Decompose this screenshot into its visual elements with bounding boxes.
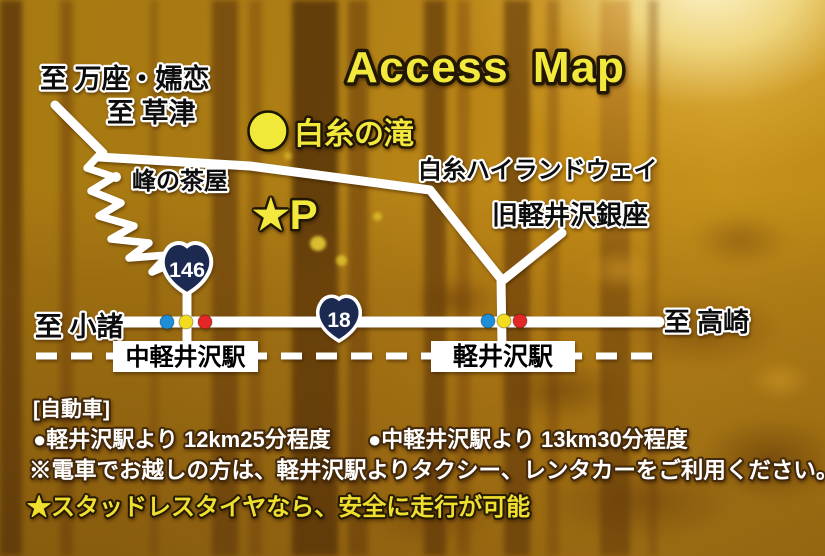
note-car-heading: [自動車] [33, 397, 110, 421]
signal-yellow-light [179, 315, 193, 329]
road-karuizawa-station-vertical [501, 278, 502, 347]
station-naka-karuizawa-label: 中軽井沢駅 [126, 344, 246, 371]
station-naka-karuizawa: 中軽井沢駅 [113, 341, 258, 372]
map-canvas: 中軽井沢駅 軽井沢駅 146 18 Access Map [0, 0, 825, 556]
road-kyu-karuizawa-ginza [502, 233, 562, 281]
note-studless-tire: ★スタッドレスタイヤなら、安全に走行が可能 [27, 492, 530, 521]
label-kyu-karuizawa-ginza: 旧軽井沢銀座 [492, 200, 648, 230]
signal-yellow-light [497, 314, 511, 328]
signal-red-light [513, 314, 527, 328]
signal-blue-light [160, 315, 174, 329]
signal-blue-light [481, 314, 495, 328]
route-18-number: 18 [327, 309, 351, 332]
access-map: 中軽井沢駅 軽井沢駅 146 18 Access Map [0, 0, 825, 556]
route-146-shield-icon: 146 [163, 243, 211, 294]
label-to-manza-tsumagoi: 至 万座・嬬恋 [40, 63, 210, 94]
note-from-naka-karuizawa: ●中軽井沢駅より 13km30分程度 [368, 427, 689, 452]
parking-star-icon: ★P [252, 191, 318, 238]
traffic-signal-naka-karuizawa [160, 315, 212, 329]
mine-no-chaya-dot-icon [111, 172, 121, 182]
label-shiraito-falls: 白糸の滝 [294, 118, 414, 151]
note-from-karuizawa: ●軽井沢駅より 12km25分程度 [33, 427, 332, 452]
label-to-takasaki: 至 高崎 [664, 307, 749, 337]
label-shiraito-highland-way: 白糸ハイランドウェイ [418, 156, 658, 184]
signal-red-light [198, 315, 212, 329]
route-146-number: 146 [169, 257, 205, 282]
label-to-kusatsu: 至 草津 [107, 98, 196, 128]
station-karuizawa: 軽井沢駅 [431, 341, 575, 372]
shiraito-falls-marker-icon [249, 112, 288, 151]
road-to-manza [55, 105, 103, 153]
page-title: Access Map [346, 43, 625, 92]
traffic-signal-karuizawa [481, 314, 527, 328]
label-to-komoro: 至 小諸 [35, 311, 124, 342]
route-18-shield-icon: 18 [318, 296, 360, 341]
label-mine-no-chaya: 峰の茶屋 [132, 167, 228, 195]
note-train: ※電車でお越しの方は、軽井沢駅よりタクシー、レンタカーをご利用ください。 [29, 457, 825, 483]
station-karuizawa-label: 軽井沢駅 [453, 343, 553, 371]
